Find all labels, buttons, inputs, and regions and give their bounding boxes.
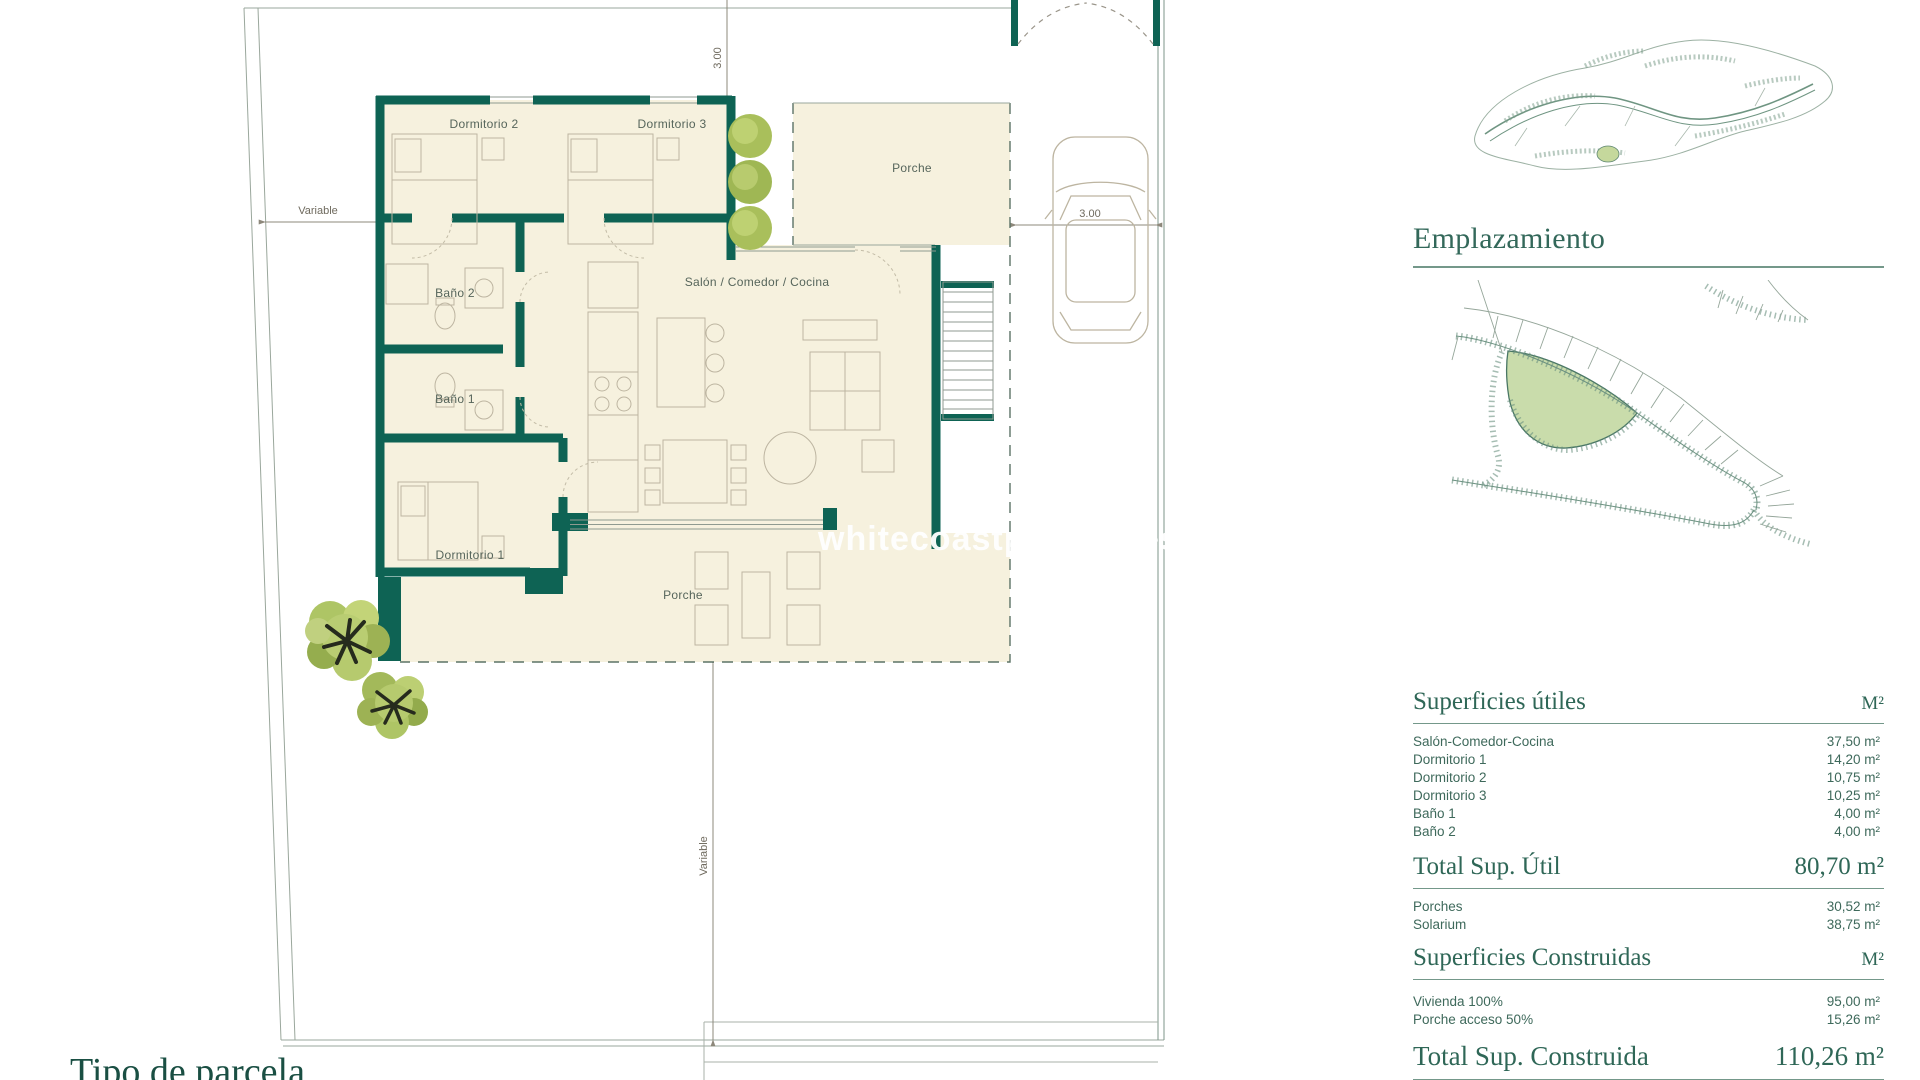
table-row: Dormitorio 210,75 m² [1413,769,1884,787]
dim-300-parking: 3.00 [1079,208,1100,220]
room-label-porche-superior: Porche [892,161,932,175]
table-row: Dormitorio 310,25 m² [1413,787,1884,805]
superficies-utiles-header: Superficies útiles M² [1413,688,1884,724]
table-row: Porche acceso 50%15,26 m² [1413,1011,1884,1029]
room-label-dormitorio-3: Dormitorio 3 [638,117,707,131]
dim-300-top: 3.00 [712,47,724,68]
table-row: Porches30,52 m² [1413,898,1884,916]
dim-variable-bottom: Variable [698,836,710,876]
room-label-salon: Salón / Comedor / Cocina [685,275,830,289]
row-value: 30,52 m² [1827,898,1880,916]
row-value: 10,75 m² [1827,769,1880,787]
total-construida-row: Total Sup. Construida 110,26 m² [1413,1041,1884,1080]
bushes [728,114,772,250]
row-value: 10,25 m² [1827,787,1880,805]
dim-variable-left: Variable [298,205,338,217]
row-value: 38,75 m² [1827,916,1880,934]
total-construida-value: 110,26 m² [1775,1041,1884,1072]
table-row: Salón-Comedor-Cocina37,50 m² [1413,733,1884,751]
row-value: 4,00 m² [1834,823,1880,841]
table-row: Solarium38,75 m² [1413,916,1884,934]
entrance-gate [1011,0,1160,46]
total-util-label: Total Sup. Útil [1413,853,1561,881]
superficies-construidas-unit: M² [1861,949,1884,971]
superficies-utiles-title: Superficies útiles [1413,688,1586,716]
masterplan-map [1445,6,1845,218]
tree [357,672,428,739]
row-value: 37,50 m² [1827,733,1880,751]
tree [305,600,390,681]
row-label: Solarium [1413,916,1466,934]
table-row: Baño 24,00 m² [1413,823,1884,841]
row-label: Baño 1 [1413,805,1456,823]
stairs [943,282,993,419]
total-construida-label: Total Sup. Construida [1413,1041,1649,1072]
room-label-dormitorio-2: Dormitorio 2 [450,117,519,131]
room-label-dormitorio-1: Dormitorio 1 [436,548,505,562]
siteplan-map [1438,280,1900,558]
row-label: Porche acceso 50% [1413,1011,1533,1029]
row-label: Dormitorio 3 [1413,787,1487,805]
row-value: 4,00 m² [1834,805,1880,823]
row-label: Dormitorio 2 [1413,769,1487,787]
row-value: 14,20 m² [1827,751,1880,769]
section-title-tipo-de-parcela: Tipo de parcela [70,1050,305,1080]
emplazamiento-title: Emplazamiento [1413,222,1884,256]
emplazamiento-rule [1413,266,1884,268]
row-value: 15,26 m² [1827,1011,1880,1029]
row-label: Dormitorio 1 [1413,751,1487,769]
table-row: Vivienda 100%95,00 m² [1413,993,1884,1011]
emplazamiento-section: Emplazamiento [1413,222,1884,268]
superficies-construidas-title: Superficies Construidas [1413,944,1651,972]
row-value: 95,00 m² [1827,993,1880,1011]
total-util-value: 80,70 m² [1795,853,1884,881]
row-label: Porches [1413,898,1463,916]
table-row: Baño 14,00 m² [1413,805,1884,823]
room-label-bano-2: Baño 2 [435,286,475,300]
superficies-utiles-unit: M² [1861,693,1884,715]
room-label-porche-inferior: Porche [663,588,703,602]
total-util-row: Total Sup. Útil 80,70 m² [1413,853,1884,889]
row-label: Salón-Comedor-Cocina [1413,733,1554,751]
superficies-construidas-header: Superficies Construidas M² [1413,944,1884,980]
floor-plan-drawing: Variable 3.00 3.00 Variable [0,0,1210,1080]
surfaces-table: Superficies útiles M² Salón-Comedor-Coci… [1413,688,1884,1080]
row-label: Vivienda 100% [1413,993,1503,1011]
room-label-bano-1: Baño 1 [435,392,475,406]
car-icon [1045,137,1156,343]
table-row: Dormitorio 114,20 m² [1413,751,1884,769]
row-label: Baño 2 [1413,823,1456,841]
highlighted-plot [1597,146,1619,162]
page: Variable 3.00 3.00 Variable [0,0,1920,1080]
